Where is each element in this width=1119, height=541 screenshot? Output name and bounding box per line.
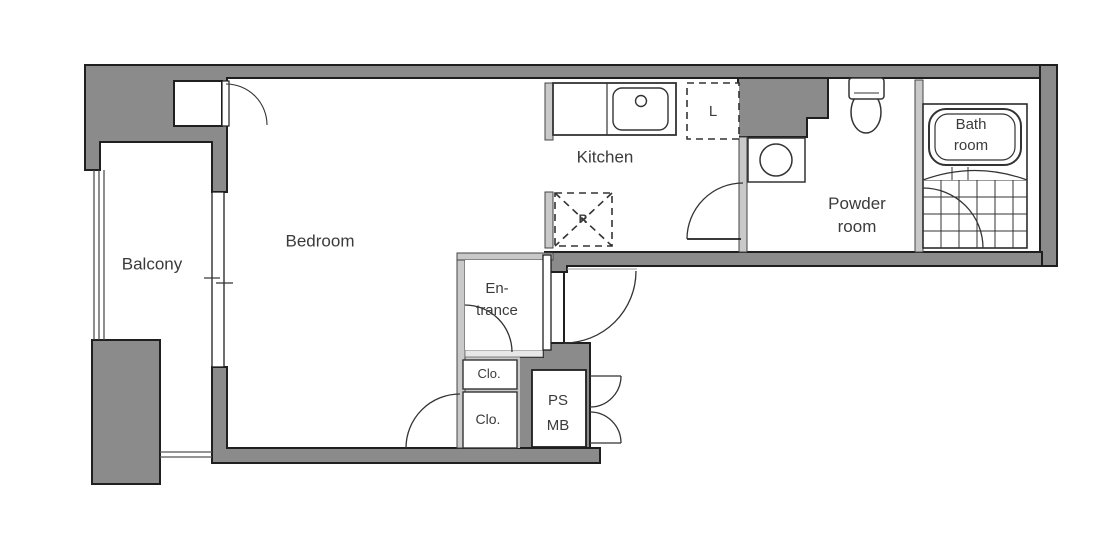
thin-wall-corridor-door [739, 137, 747, 252]
bath-room-label: Bath room [954, 114, 988, 156]
sink-faucet-circle [636, 96, 647, 107]
front-door-swing-arc [564, 271, 636, 343]
closet-lower-label: Clo. [476, 411, 501, 427]
powder-room-label: Powder room [828, 192, 886, 238]
entrance-label: En- trance [476, 278, 518, 322]
entrance-label-line2: trance [476, 300, 518, 322]
closet-door-swing-arc [406, 394, 460, 448]
floor-plan: Balcony Bedroom Kitchen Powder room Bath… [0, 0, 1119, 541]
entrance-step [465, 350, 543, 357]
kitchen-sink [613, 88, 668, 130]
psmb-label: PS MB [547, 388, 570, 438]
balcony-bottom-joint [160, 452, 212, 457]
thin-wall-counter-stub [545, 83, 553, 140]
toilet-tank [849, 78, 884, 99]
balcony-railing [94, 170, 104, 340]
alcove-recess [174, 81, 222, 126]
bath-room-label-line2: room [954, 135, 988, 156]
thin-wall-entrance-top [457, 253, 553, 260]
washing-machine [748, 138, 805, 182]
balcony-label: Balcony [122, 253, 182, 276]
alcove [174, 81, 267, 126]
alcove-door-swing-arc [226, 84, 267, 125]
meter-box-double-doors [590, 376, 621, 443]
entrance-label-line1: En- [476, 278, 518, 300]
kitchen-label: Kitchen [577, 146, 634, 169]
thin-wall-fridge-stub [545, 192, 553, 248]
laundry-space-label: L [709, 101, 717, 123]
wall-balcony-pillar [92, 340, 160, 484]
bath-room-label-line1: Bath [954, 114, 988, 135]
corridor-door-swing-arc [687, 183, 743, 239]
closet-upper-label: Clo. [477, 366, 500, 382]
wall-kitchen-powder-block [738, 78, 828, 137]
ps-label: PS [547, 388, 570, 413]
refrigerator-space-label: R [579, 212, 588, 226]
powder-room-label-line2: room [828, 215, 886, 238]
wall-east [1040, 65, 1057, 266]
corridor-door [687, 183, 743, 239]
thin-wall-powder-bath [915, 80, 923, 252]
bedroom-label: Bedroom [286, 230, 355, 253]
powder-room-label-line1: Powder [828, 192, 886, 215]
toilet [849, 78, 884, 133]
front-door-frame [543, 255, 551, 350]
sliding-window [204, 192, 233, 367]
mb-label: MB [547, 413, 570, 438]
alcove-door-leaf [222, 81, 229, 126]
